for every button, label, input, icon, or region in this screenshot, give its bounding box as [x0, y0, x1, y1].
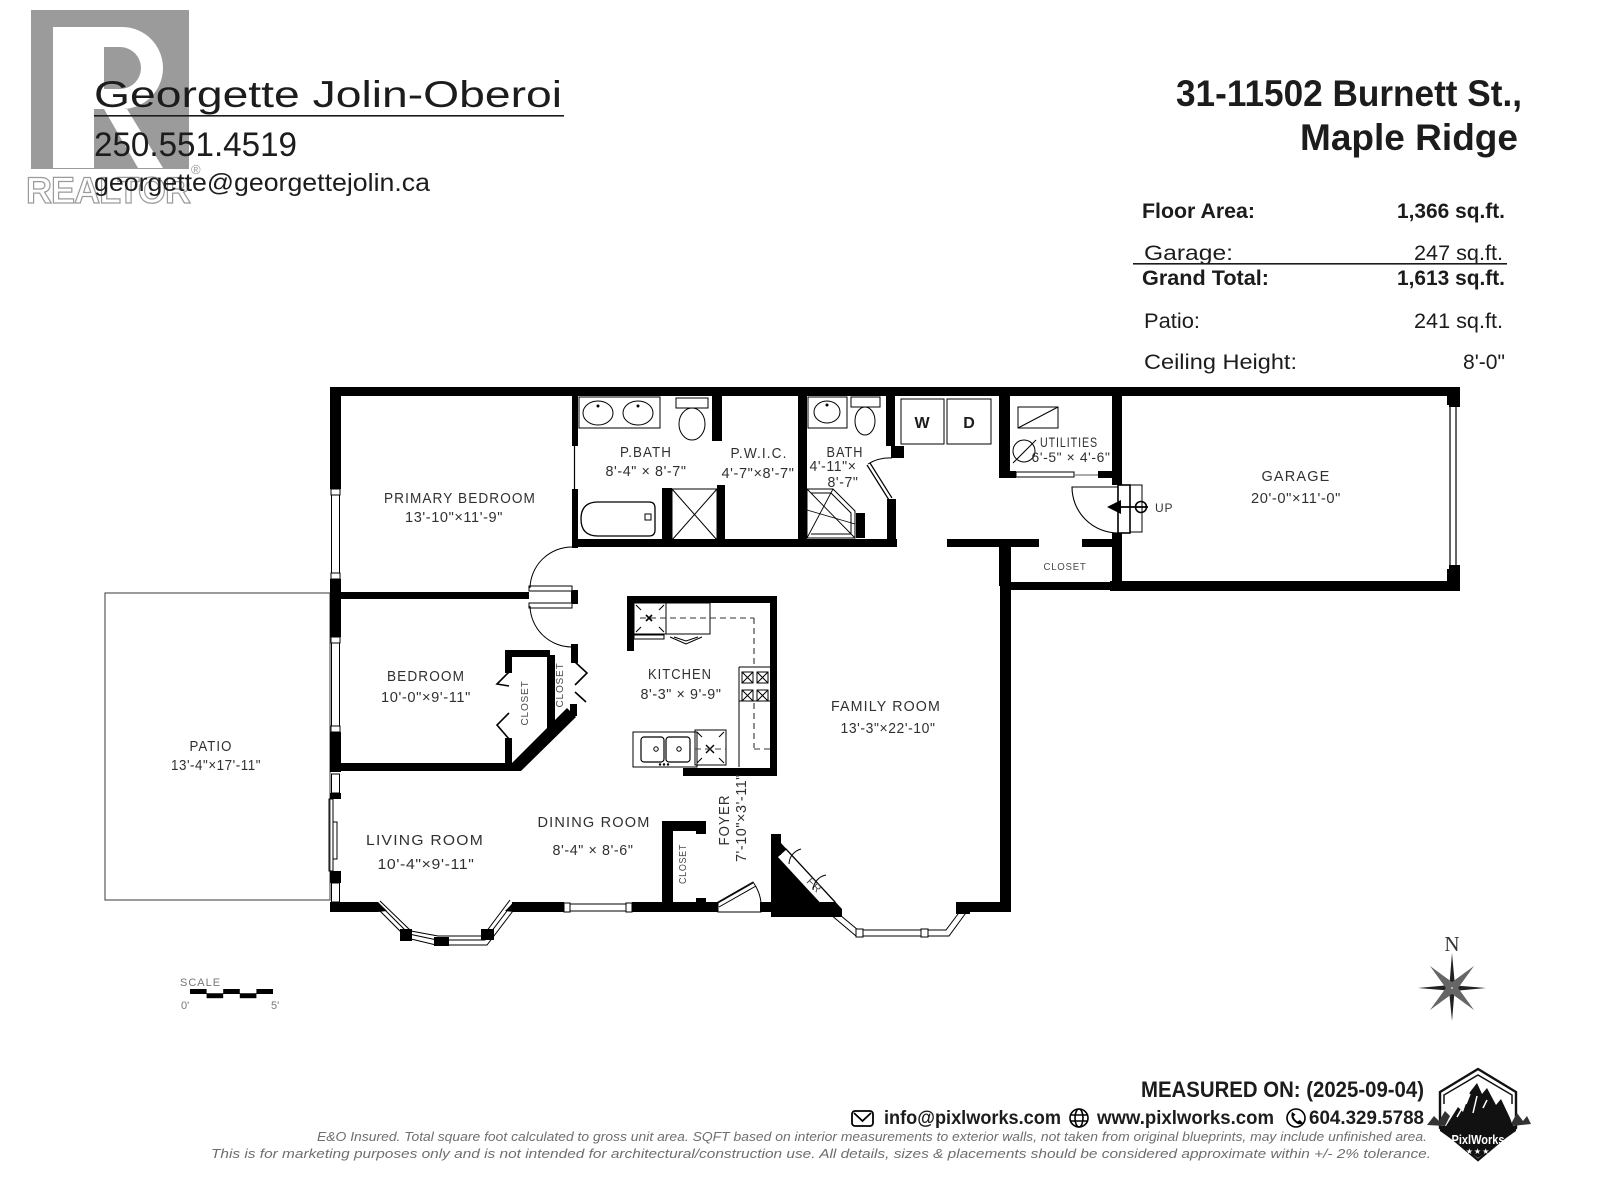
svg-text:247 sq.ft.: 247 sq.ft.	[1414, 242, 1503, 265]
svg-text:31-11502 Burnett St.,: 31-11502 Burnett St.,	[1176, 73, 1522, 114]
svg-text:BEDROOM: BEDROOM	[387, 668, 465, 685]
svg-text:Patio:: Patio:	[1144, 310, 1200, 333]
svg-text:This is for marketing purposes: This is for marketing purposes only and …	[211, 1147, 1431, 1161]
svg-text:FOYER: FOYER	[716, 795, 733, 846]
svg-text:N: N	[1444, 932, 1459, 956]
svg-text:MEASURED ON: (2025-09-04): MEASURED ON: (2025-09-04)	[1141, 1077, 1424, 1102]
svg-text:www.pixlworks.com: www.pixlworks.com	[1096, 1108, 1274, 1129]
svg-text:georgette@georgettejolin.ca: georgette@georgettejolin.ca	[94, 169, 430, 197]
svg-text:SCALE: SCALE	[180, 977, 221, 989]
svg-text:E&O Insured. Total square foo: E&O Insured. Total square foot calculate…	[317, 1130, 1427, 1144]
svg-text:KITCHEN: KITCHEN	[648, 666, 712, 683]
svg-text:PixlWorks: PixlWorks	[1452, 1132, 1505, 1147]
svg-text:CLOSET: CLOSET	[1044, 561, 1087, 573]
svg-text:7'-10"×3'-11": 7'-10"×3'-11"	[734, 774, 750, 862]
svg-text:★★★: ★★★	[1466, 1147, 1491, 1156]
svg-text:13'-10"×11'-9": 13'-10"×11'-9"	[405, 510, 503, 526]
svg-text:CLOSET: CLOSET	[554, 663, 566, 708]
svg-text:241 sq.ft.: 241 sq.ft.	[1414, 310, 1503, 333]
svg-text:DINING ROOM: DINING ROOM	[538, 814, 651, 831]
svg-text:20'-0"×11'-0": 20'-0"×11'-0"	[1251, 491, 1341, 507]
svg-text:10'-4"×9'-11": 10'-4"×9'-11"	[378, 857, 475, 873]
svg-text:4'-11"×: 4'-11"×	[810, 459, 857, 475]
svg-text:Georgette Jolin-Oberoi: Georgette Jolin-Oberoi	[94, 74, 562, 115]
svg-text:CLOSET: CLOSET	[677, 844, 689, 884]
svg-text:604.329.5788: 604.329.5788	[1309, 1108, 1424, 1129]
svg-text:10'-0"×9'-11": 10'-0"×9'-11"	[381, 690, 471, 706]
svg-text:PRIMARY BEDROOM: PRIMARY BEDROOM	[384, 490, 536, 507]
svg-text:8'-4" × 8'-6": 8'-4" × 8'-6"	[553, 843, 634, 859]
svg-text:5': 5'	[271, 1000, 279, 1012]
svg-text:250.551.4519: 250.551.4519	[94, 126, 297, 164]
svg-text:Floor Area:: Floor Area:	[1142, 200, 1255, 223]
svg-text:D: D	[963, 415, 975, 432]
svg-text:P.W.I.C.: P.W.I.C.	[731, 445, 788, 462]
svg-text:CLOSET: CLOSET	[519, 681, 531, 726]
svg-text:1,366 sq.ft.: 1,366 sq.ft.	[1397, 200, 1505, 223]
svg-text:8'-4" × 8'-7": 8'-4" × 8'-7"	[606, 464, 687, 480]
svg-text:6'-5" × 4'-6": 6'-5" × 4'-6"	[1032, 450, 1111, 465]
svg-text:13'-4"×17'-11": 13'-4"×17'-11"	[171, 758, 261, 774]
svg-text:info@pixlworks.com: info@pixlworks.com	[884, 1108, 1061, 1129]
svg-text:8'-0": 8'-0"	[1463, 351, 1505, 374]
svg-text:4'-7"×8'-7": 4'-7"×8'-7"	[722, 466, 795, 482]
svg-text:UTILITIES: UTILITIES	[1040, 434, 1098, 450]
svg-text:Grand Total:: Grand Total:	[1142, 267, 1269, 290]
svg-text:W: W	[914, 415, 930, 432]
svg-text:PATIO: PATIO	[190, 738, 233, 755]
svg-text:P.BATH: P.BATH	[620, 444, 672, 461]
svg-text:UP: UP	[1155, 501, 1173, 515]
svg-text:Ceiling Height:: Ceiling Height:	[1144, 351, 1297, 374]
svg-text:8'-3" × 9'-9": 8'-3" × 9'-9"	[641, 687, 722, 703]
svg-text:Maple Ridge: Maple Ridge	[1300, 117, 1518, 158]
svg-text:FAMILY ROOM: FAMILY ROOM	[831, 698, 941, 715]
svg-text:1,613 sq.ft.: 1,613 sq.ft.	[1397, 267, 1505, 290]
svg-text:0': 0'	[181, 1000, 189, 1012]
svg-text:GARAGE: GARAGE	[1262, 468, 1331, 485]
svg-text:13'-3"×22'-10": 13'-3"×22'-10"	[841, 721, 936, 737]
svg-text:LIVING ROOM: LIVING ROOM	[366, 832, 484, 849]
svg-text:Garage:: Garage:	[1144, 242, 1233, 265]
